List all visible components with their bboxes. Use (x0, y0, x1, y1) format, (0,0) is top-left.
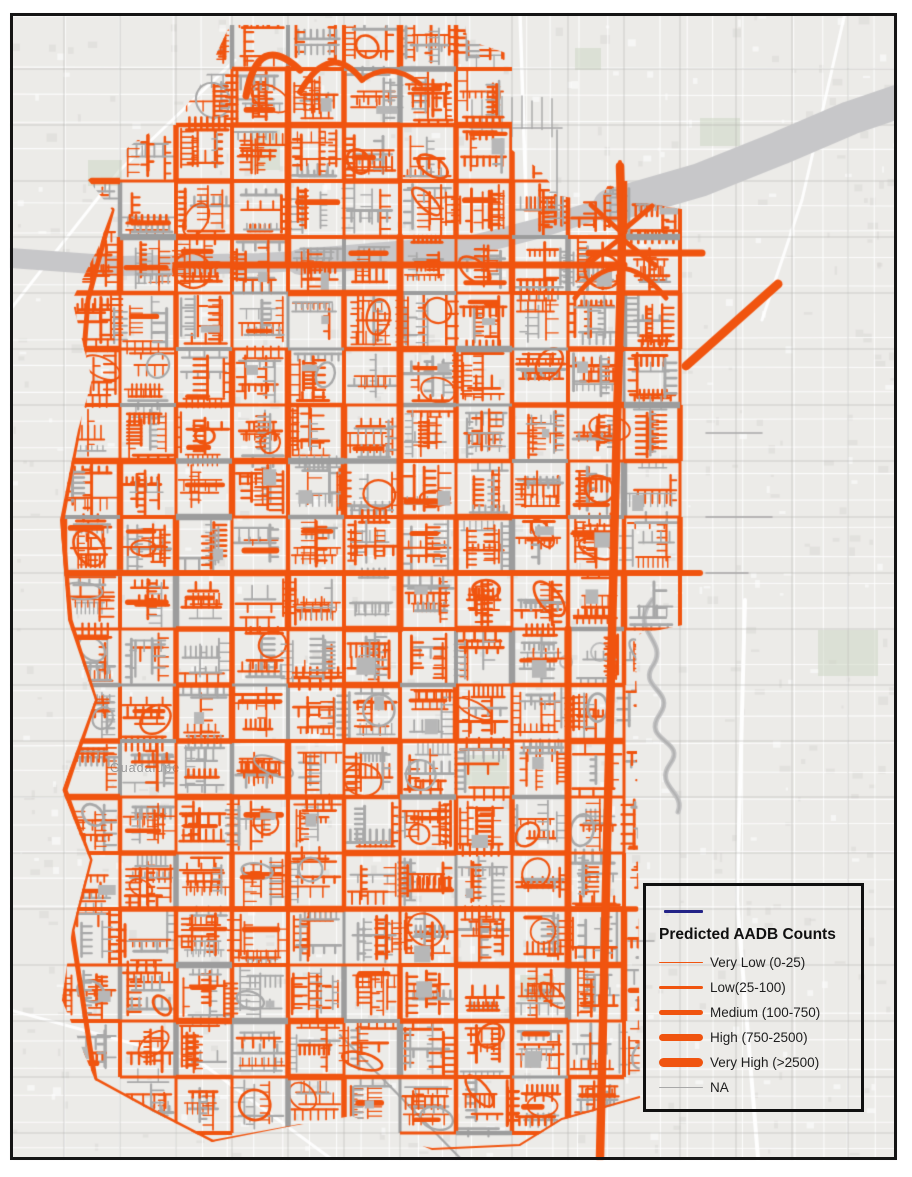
legend-item: Very High (>2500) (659, 1050, 857, 1075)
line-swatch (659, 962, 703, 963)
legend-item-label: NA (710, 1080, 729, 1095)
legend-rows: Very Low (0-25) Low(25-100) Medium (100-… (659, 950, 857, 1100)
legend-item-label: Medium (100-750) (710, 1005, 820, 1020)
line-swatch (659, 1010, 703, 1015)
line-swatch (659, 1034, 703, 1041)
map-figure: Guadalupe Predicted AADB Counts Very Low… (0, 0, 912, 1177)
legend-item: Very Low (0-25) (659, 950, 857, 975)
legend-item: Low(25-100) (659, 975, 857, 1000)
line-swatch (659, 1058, 703, 1067)
legend-item-label: High (750-2500) (710, 1030, 808, 1045)
legend: Predicted AADB Counts Very Low (0-25) Lo… (643, 883, 864, 1112)
legend-item-label: Very Low (0-25) (710, 955, 805, 970)
legend-title: Predicted AADB Counts (659, 926, 836, 944)
legend-item-label: Low(25-100) (710, 980, 786, 995)
line-swatch (659, 986, 703, 990)
boundary-line-swatch (664, 910, 703, 913)
line-swatch (659, 1087, 703, 1089)
legend-item-label: Very High (>2500) (710, 1055, 819, 1070)
legend-item: NA (659, 1075, 857, 1100)
legend-item: Medium (100-750) (659, 1000, 857, 1025)
legend-item: High (750-2500) (659, 1025, 857, 1050)
